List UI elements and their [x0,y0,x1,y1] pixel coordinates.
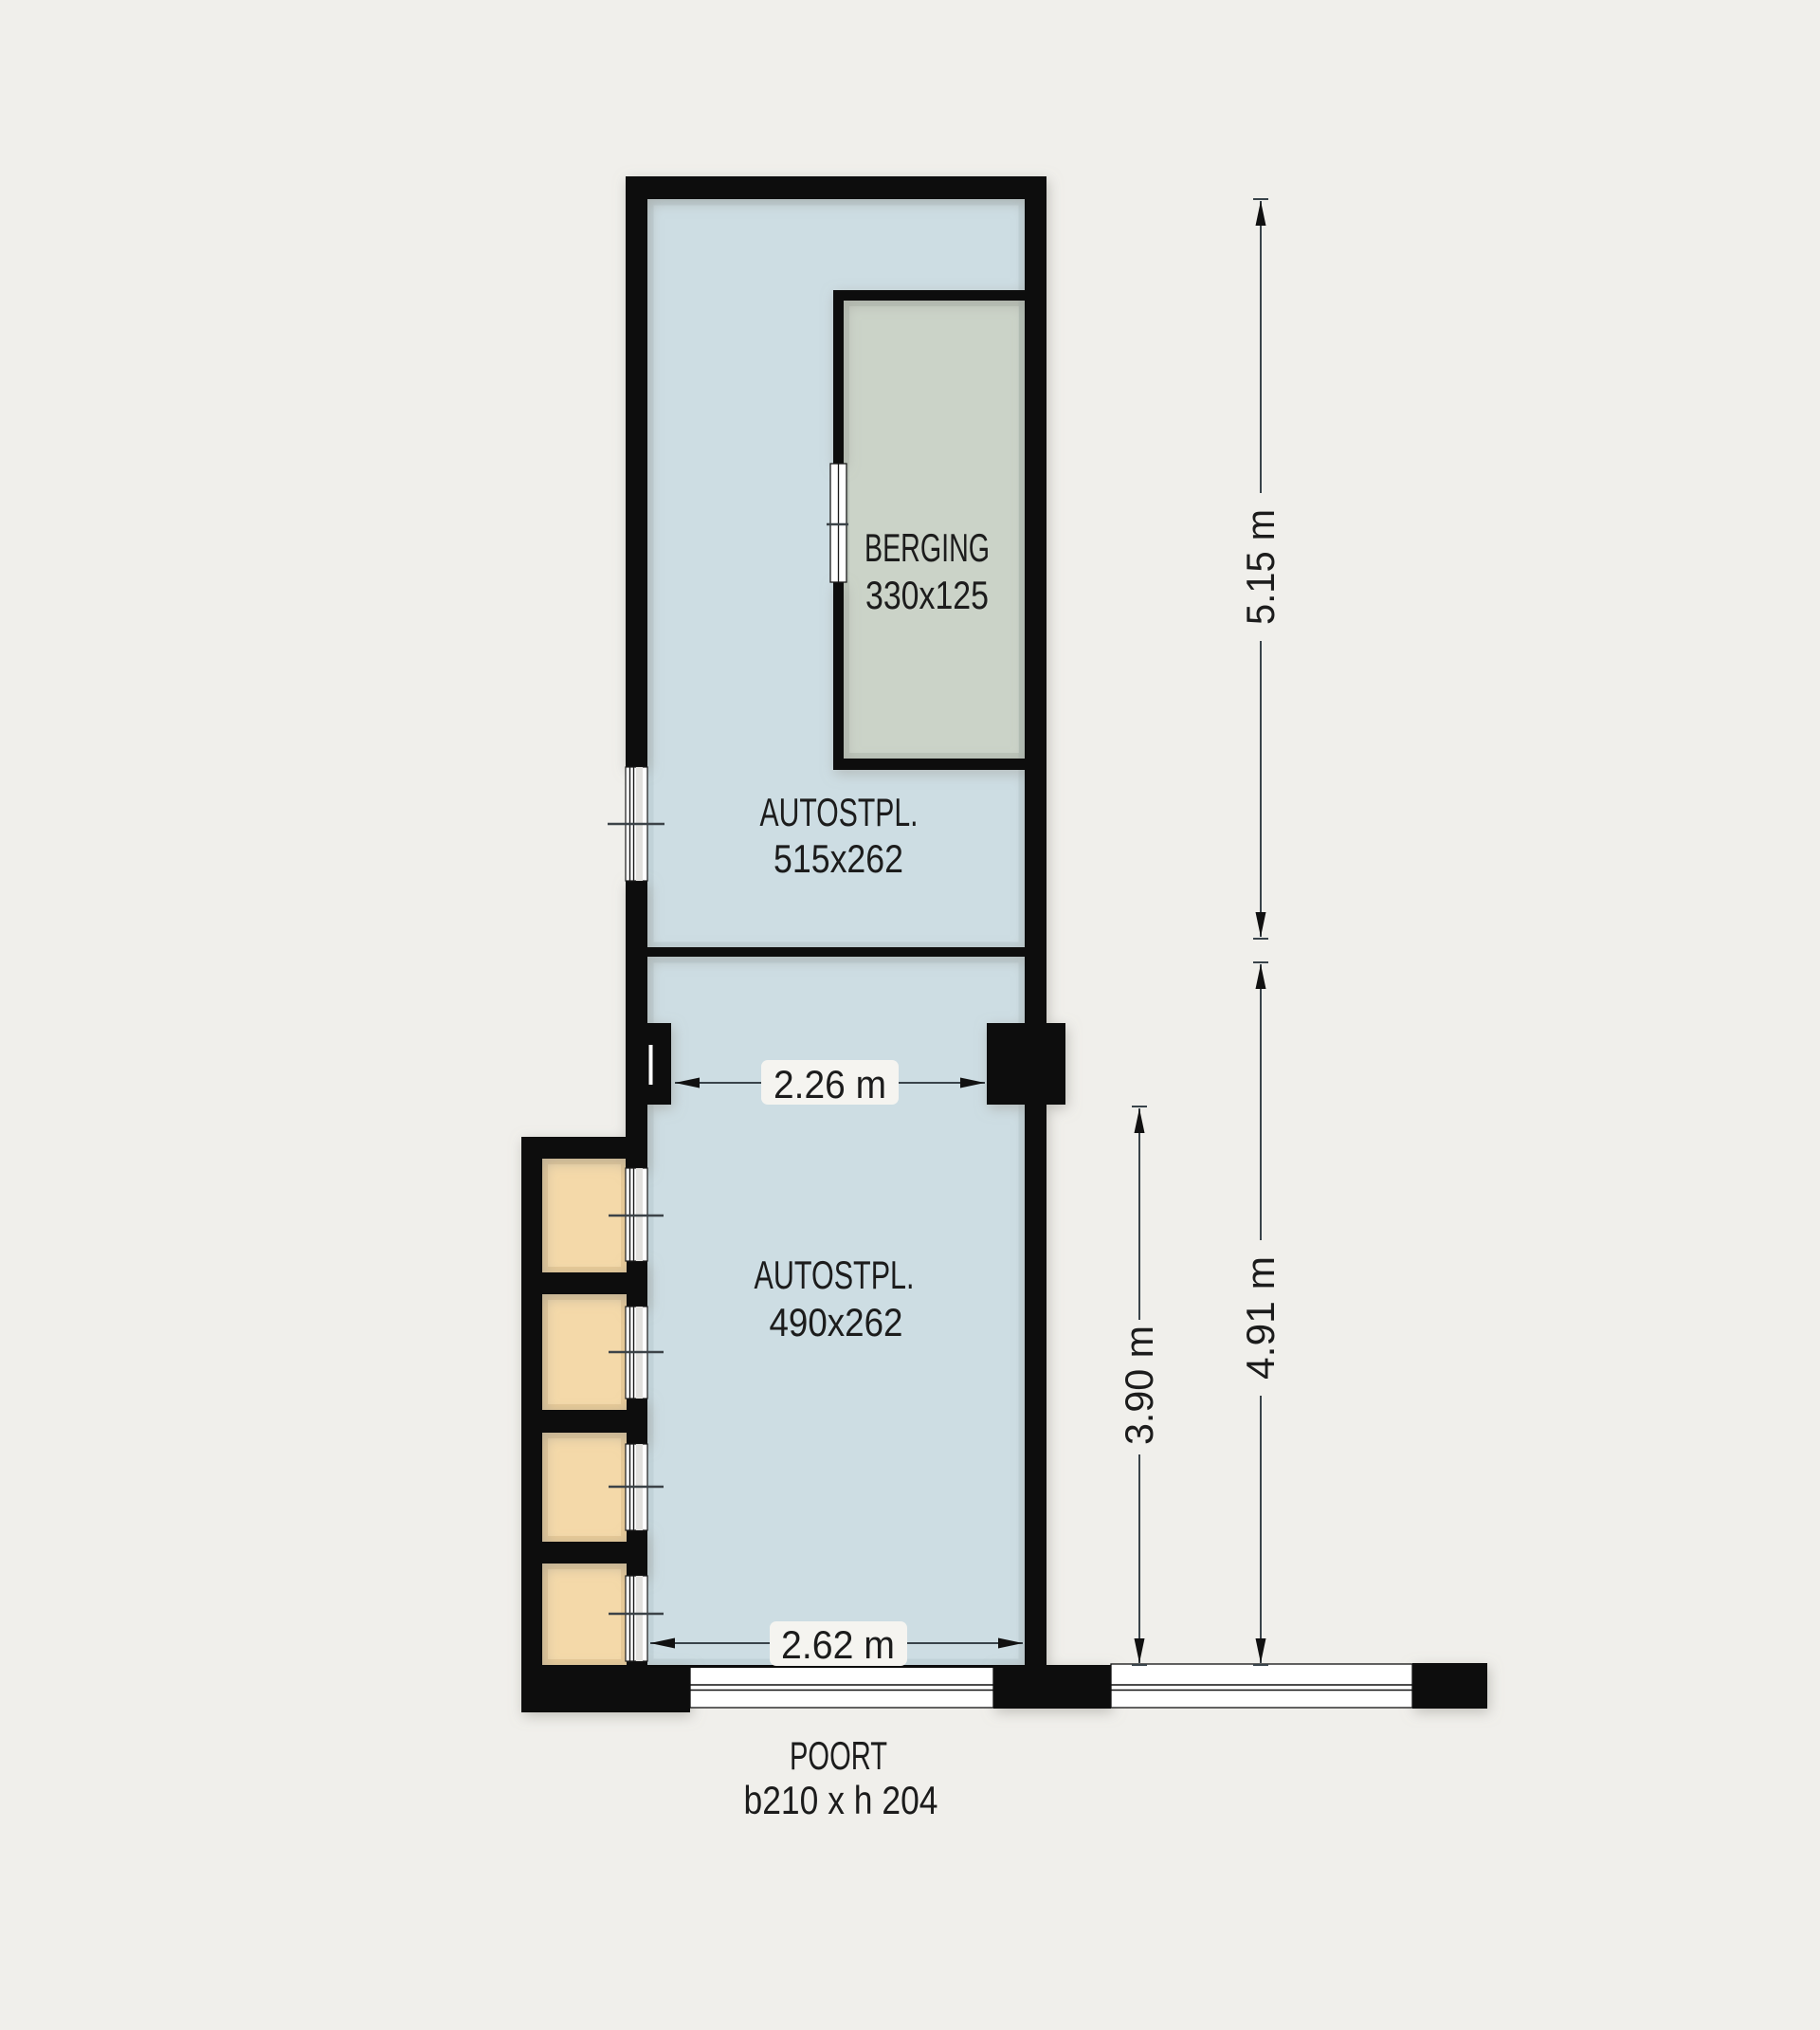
svg-text:2.62 m: 2.62 m [781,1622,895,1667]
svg-text:5.15 m: 5.15 m [1238,509,1283,625]
svg-text:BERGING: BERGING [864,525,990,570]
svg-text:AUTOSTPL.: AUTOSTPL. [760,790,919,834]
svg-text:b210 x h 204: b210 x h 204 [744,1778,938,1822]
svg-text:POORT: POORT [790,1733,887,1778]
svg-text:3.90 m: 3.90 m [1117,1326,1161,1445]
svg-text:AUTOSTPL.: AUTOSTPL. [755,1253,915,1297]
svg-text:2.26 m: 2.26 m [773,1062,886,1106]
svg-text:515x262: 515x262 [773,836,903,881]
svg-text:330x125: 330x125 [865,573,989,617]
svg-text:4.91 m: 4.91 m [1238,1256,1283,1380]
svg-text:490x262: 490x262 [770,1300,903,1344]
